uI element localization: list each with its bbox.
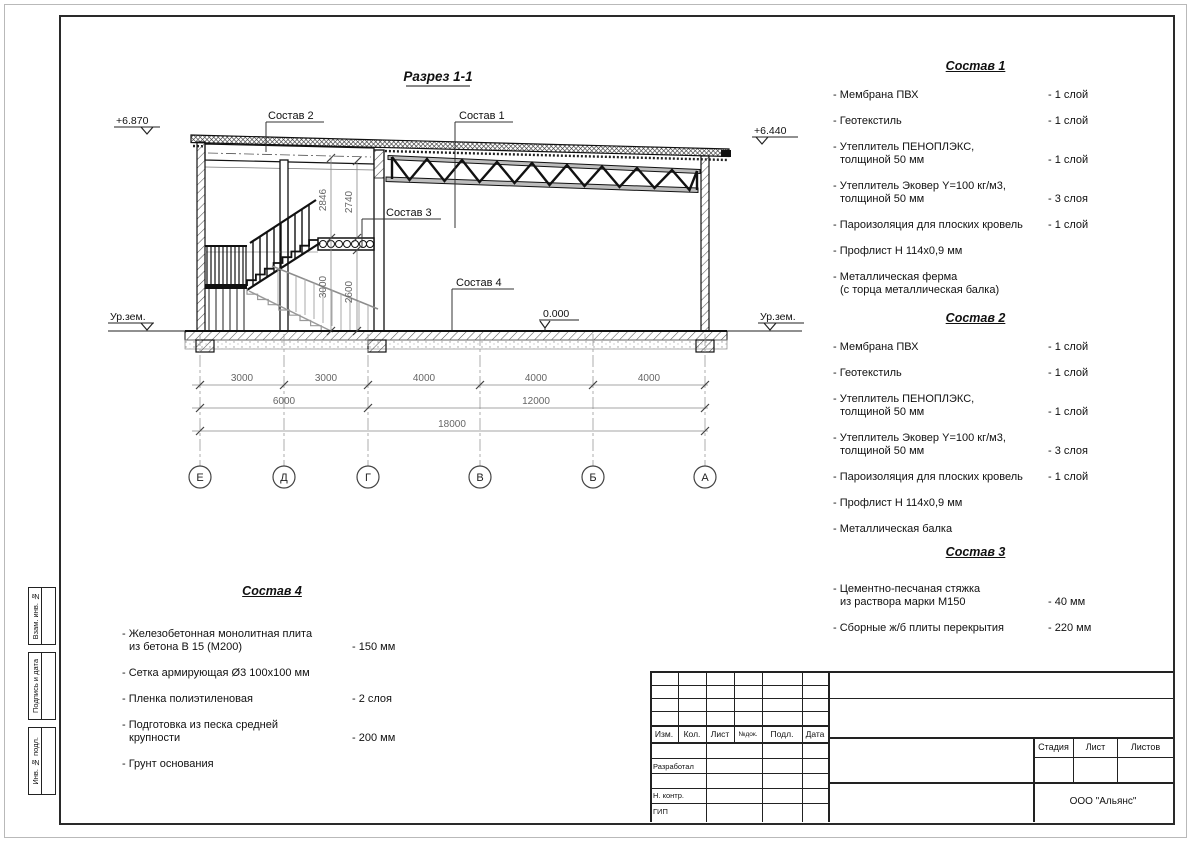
- item-name: - Мембрана ПВХ: [833, 89, 918, 102]
- ground-level-right: Ур.зем.: [760, 311, 796, 323]
- side-box-podpis: Подпись и дата: [28, 652, 56, 720]
- item-name: - Утеплитель Эковер Y=100 кг/м3,: [833, 180, 1006, 193]
- item-name: - Мембрана ПВХ: [833, 341, 918, 354]
- list-item: - Профлист Н 114х0,9 мм: [833, 497, 1118, 510]
- tb-col-kol: Кол.: [678, 729, 706, 739]
- item-qty: - 200 мм: [352, 732, 422, 745]
- side-label-cell: Подпись и дата: [29, 653, 42, 719]
- list-item: - Пленка полиэтиленовая- 2 слоя: [122, 693, 422, 706]
- list-item: - Пароизоляция для плоских кровель- 1 сл…: [833, 471, 1118, 484]
- list-item: - Утеплитель ПЕНОПЛЭКС,толщиной 50 мм- 1…: [833, 141, 1118, 167]
- item-qty: - 1 слой: [1048, 219, 1118, 232]
- callout-sostav-1: Состав 1: [459, 110, 505, 122]
- dim-4000-2: 4000: [525, 373, 548, 384]
- list-item: - Цементно-песчаная стяжкаиз раствора ма…: [833, 583, 1118, 609]
- tb-sheets-label: Листов: [1118, 742, 1173, 752]
- side-label: Инв. № подл.: [31, 737, 40, 785]
- item-qty: - 3 слоя: [1048, 193, 1118, 206]
- staircase: [205, 200, 378, 332]
- tb-role-gip: ГИП: [653, 807, 668, 816]
- item-qty: - 1 слой: [1048, 471, 1118, 484]
- roof-truss: [386, 156, 700, 193]
- item-name-2: толщиной 50 мм: [833, 445, 1006, 458]
- item-name: - Грунт основания: [122, 758, 214, 771]
- item-name: - Железобетонная монолитная плита: [122, 628, 312, 641]
- tb-col-izm: Изм.: [650, 729, 678, 739]
- item-qty: - 2 слоя: [352, 693, 422, 706]
- tb-col-ndok: №док.: [734, 731, 762, 738]
- item-name-2: крупности: [122, 732, 278, 745]
- dim-4000-1: 4000: [413, 373, 436, 384]
- list-title: Состав 2: [833, 312, 1118, 325]
- item-name: - Сборные ж/б плиты перекрытия: [833, 622, 1004, 635]
- tb-col-podl: Подл.: [762, 729, 802, 739]
- list-title: Состав 3: [833, 546, 1118, 559]
- list-item: - Металлическая балка: [833, 523, 1118, 536]
- item-name: - Утеплитель ПЕНОПЛЭКС,: [833, 141, 974, 154]
- tb-company-name: ООО "Альянс": [1033, 796, 1173, 807]
- side-label-cell: Инв. № подл.: [29, 728, 42, 794]
- axis-label-a: А: [701, 472, 709, 484]
- level-top-right: +6.440: [754, 125, 787, 137]
- axis-label-b: Б: [589, 472, 596, 484]
- composition-list-2: Состав 2 - Мембрана ПВХ- 1 слой - Геотек…: [833, 312, 1118, 549]
- composition-list-1: Состав 1 - Мембрана ПВХ- 1 слой - Геотек…: [833, 60, 1118, 310]
- dim-3000-v: 3000: [318, 275, 329, 298]
- item-name: - Профлист Н 114х0,9 мм: [833, 245, 962, 258]
- callout-sostav-2: Состав 2: [268, 110, 314, 122]
- item-name: - Пароизоляция для плоских кровель: [833, 471, 1023, 484]
- item-qty: - 1 слой: [1048, 367, 1118, 380]
- composition-list-3: Состав 3 - Цементно-песчаная стяжкаиз ра…: [833, 546, 1118, 648]
- item-name: - Сетка армирующая Ø3 100х100 мм: [122, 667, 310, 680]
- tb-stage-label: Стадия: [1034, 742, 1073, 752]
- dim-12000: 12000: [522, 396, 550, 407]
- dim-18000: 18000: [438, 419, 466, 430]
- item-name: - Пароизоляция для плоских кровель: [833, 219, 1023, 232]
- item-qty: - 1 слой: [1048, 341, 1118, 354]
- item-name-2: из бетона В 15 (М200): [122, 641, 312, 654]
- item-name-2: толщиной 50 мм: [833, 154, 974, 167]
- side-label: Взам. инв. №: [31, 592, 40, 639]
- list-item: - Утеплитель Эковер Y=100 кг/м3,толщиной…: [833, 432, 1118, 458]
- item-name: - Цементно-песчаная стяжка: [833, 583, 980, 596]
- item-qty: - 1 слой: [1048, 115, 1118, 128]
- section-title: Разрез 1-1: [403, 69, 472, 84]
- list-title: Состав 1: [833, 60, 1118, 73]
- list-item: - Сетка армирующая Ø3 100х100 мм: [122, 667, 422, 680]
- horizontal-dimensions: 3000 3000 4000 4000 4000 6000 12000 1800…: [192, 373, 709, 435]
- axis-bubbles: Е Д Г В Б А: [189, 466, 716, 488]
- item-qty: - 3 слоя: [1048, 445, 1118, 458]
- list-title: Состав 4: [122, 585, 422, 598]
- dim-6000: 6000: [273, 396, 296, 407]
- dim-4000-3: 4000: [638, 373, 661, 384]
- tb-role-developer: Разработал: [653, 762, 694, 771]
- item-name-2: толщиной 50 мм: [833, 193, 1006, 206]
- list-item: - Утеплитель ПЕНОПЛЭКС,толщиной 50 мм- 1…: [833, 393, 1118, 419]
- item-name: - Профлист Н 114х0,9 мм: [833, 497, 962, 510]
- dim-2846: 2846: [318, 188, 329, 211]
- item-qty: - 40 мм: [1048, 596, 1118, 609]
- list-item: - Мембрана ПВХ- 1 слой: [833, 89, 1118, 102]
- dim-2740: 2740: [344, 190, 355, 213]
- list-item: - Утеплитель Эковер Y=100 кг/м3,толщиной…: [833, 180, 1118, 206]
- tb-col-list: Лист: [706, 729, 734, 739]
- callout-sostav-4: Состав 4: [456, 277, 502, 289]
- dim-3000-2: 3000: [315, 373, 338, 384]
- item-qty: - 1 слой: [1048, 406, 1118, 419]
- item-name: - Металлическая ферма: [833, 271, 999, 284]
- item-name: - Металлическая балка: [833, 523, 952, 536]
- roof-beam: [205, 144, 374, 170]
- list-item: - Подготовка из песка среднейкрупности- …: [122, 719, 422, 745]
- list-item: - Металлическая ферма(с торца металличес…: [833, 271, 1118, 297]
- item-name-2: из раствора марки М150: [833, 596, 980, 609]
- ground-level-left: Ур.зем.: [110, 311, 146, 323]
- drawing-sheet: Разрез 1-1: [0, 0, 1191, 842]
- item-name: - Утеплитель Эковер Y=100 кг/м3,: [833, 432, 1006, 445]
- item-qty: - 150 мм: [352, 641, 422, 654]
- list-item: - Профлист Н 114х0,9 мм: [833, 245, 1118, 258]
- item-name-2: толщиной 50 мм: [833, 406, 974, 419]
- side-label: Подпись и дата: [31, 659, 40, 713]
- list-item: - Геотекстиль- 1 слой: [833, 115, 1118, 128]
- item-name: - Геотекстиль: [833, 367, 902, 380]
- list-item: - Железобетонная монолитная плитаиз бето…: [122, 628, 422, 654]
- item-name: - Геотекстиль: [833, 115, 902, 128]
- item-name: - Пленка полиэтиленовая: [122, 693, 253, 706]
- list-item: - Сборные ж/б плиты перекрытия- 220 мм: [833, 622, 1118, 635]
- side-label-cell: Взам. инв. №: [29, 588, 42, 644]
- side-box-vzam: Взам. инв. №: [28, 587, 56, 645]
- item-qty: - 1 слой: [1048, 89, 1118, 102]
- dim-2600-v: 2600: [344, 280, 355, 303]
- item-name: - Утеплитель ПЕНОПЛЭКС,: [833, 393, 974, 406]
- level-zero: 0.000: [543, 308, 569, 320]
- axis-label-d: Д: [280, 472, 288, 484]
- tb-role-ncontr: Н. контр.: [653, 791, 684, 800]
- dim-3000-1: 3000: [231, 373, 254, 384]
- tb-sheet-label: Лист: [1074, 742, 1117, 752]
- item-qty: - 1 слой: [1048, 154, 1118, 167]
- axis-label-g: Г: [365, 472, 371, 484]
- level-top-left: +6.870: [116, 115, 149, 127]
- floor: [108, 331, 802, 352]
- tb-col-data: Дата: [802, 729, 828, 739]
- axis-label-e: Е: [196, 472, 203, 484]
- axis-label-v: В: [476, 472, 483, 484]
- item-name-2: (с торца металлическая балка): [833, 284, 999, 297]
- composition-list-4: Состав 4 - Железобетонная монолитная пли…: [122, 585, 422, 784]
- callout-sostav-3: Состав 3: [386, 207, 432, 219]
- item-qty: - 220 мм: [1048, 622, 1118, 635]
- list-item: - Грунт основания: [122, 758, 422, 771]
- list-item: - Геотекстиль- 1 слой: [833, 367, 1118, 380]
- item-name: - Подготовка из песка средней: [122, 719, 278, 732]
- list-item: - Пароизоляция для плоских кровель- 1 сл…: [833, 219, 1118, 232]
- list-item: - Мембрана ПВХ- 1 слой: [833, 341, 1118, 354]
- side-box-inv: Инв. № подл.: [28, 727, 56, 795]
